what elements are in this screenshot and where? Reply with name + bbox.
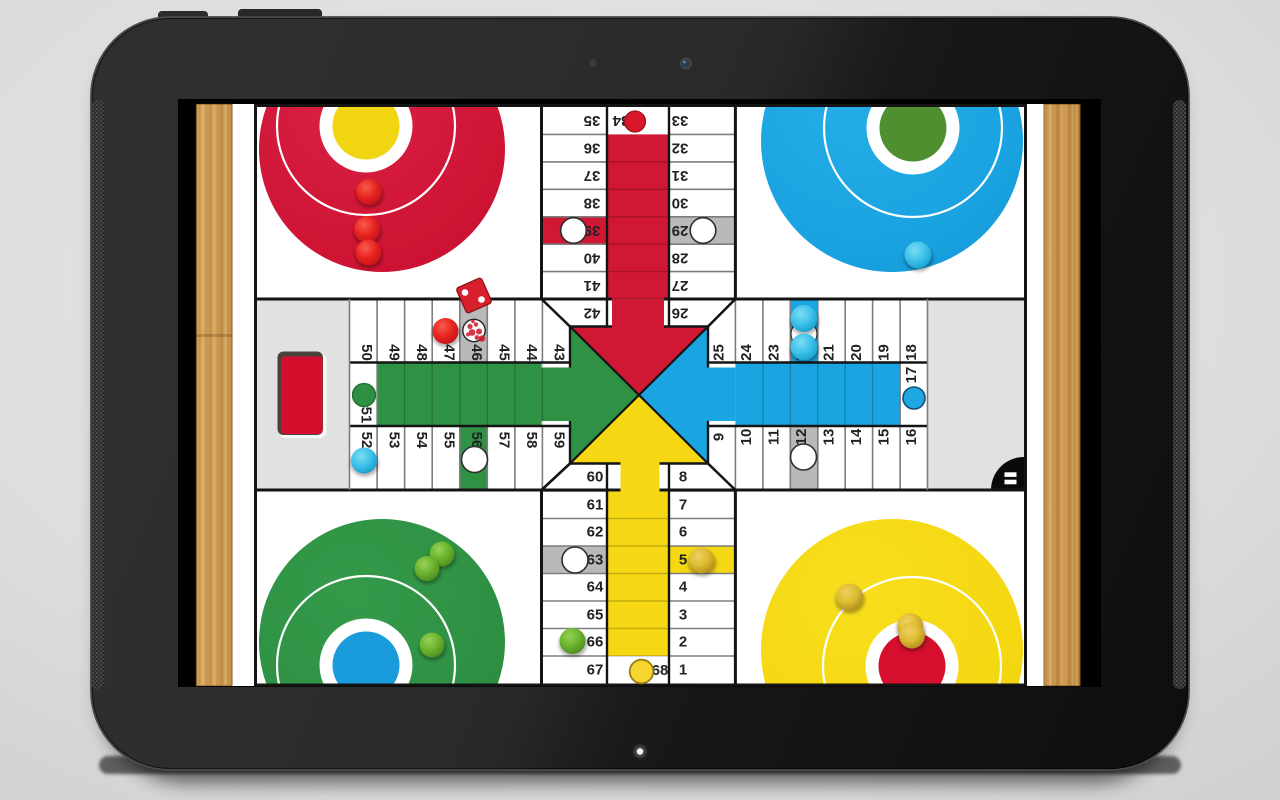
svg-text:31: 31: [672, 167, 689, 184]
svg-text:59: 59: [551, 432, 568, 449]
svg-text:41: 41: [584, 277, 601, 294]
svg-text:64: 64: [587, 579, 604, 596]
svg-text:5: 5: [679, 551, 687, 568]
svg-text:15: 15: [875, 429, 892, 446]
svg-text:44: 44: [523, 344, 540, 361]
svg-text:60: 60: [587, 469, 604, 486]
svg-text:9: 9: [711, 433, 728, 441]
svg-text:42: 42: [584, 304, 601, 321]
svg-text:25: 25: [711, 344, 728, 361]
svg-text:61: 61: [587, 496, 604, 513]
svg-text:23: 23: [766, 344, 783, 361]
svg-text:40: 40: [584, 249, 601, 266]
svg-text:50: 50: [358, 344, 375, 361]
svg-text:45: 45: [496, 344, 513, 361]
svg-text:43: 43: [551, 344, 568, 361]
svg-text:4: 4: [679, 579, 688, 596]
svg-text:21: 21: [821, 344, 838, 361]
svg-text:65: 65: [587, 606, 604, 623]
svg-text:29: 29: [672, 222, 689, 239]
svg-text:46: 46: [468, 344, 485, 361]
svg-text:37: 37: [584, 167, 601, 184]
svg-text:10: 10: [738, 429, 755, 446]
svg-text:32: 32: [672, 140, 689, 157]
svg-text:35: 35: [584, 112, 601, 129]
svg-text:7: 7: [679, 496, 687, 513]
svg-text:36: 36: [584, 140, 601, 157]
svg-text:6: 6: [679, 524, 687, 541]
svg-text:66: 66: [587, 634, 604, 651]
svg-text:12: 12: [793, 429, 810, 446]
svg-text:55: 55: [441, 432, 458, 449]
svg-text:2: 2: [679, 634, 687, 651]
svg-text:16: 16: [903, 429, 920, 446]
svg-text:24: 24: [738, 344, 755, 361]
svg-text:58: 58: [523, 432, 540, 449]
svg-text:57: 57: [496, 432, 513, 449]
svg-text:14: 14: [848, 428, 865, 445]
svg-text:51: 51: [358, 407, 375, 424]
svg-text:18: 18: [903, 344, 920, 361]
svg-text:3: 3: [679, 606, 687, 623]
svg-text:26: 26: [672, 304, 689, 321]
svg-text:11: 11: [766, 429, 783, 445]
svg-text:19: 19: [875, 344, 892, 361]
svg-text:38: 38: [584, 195, 601, 212]
svg-text:49: 49: [385, 344, 402, 361]
svg-text:33: 33: [672, 112, 689, 129]
svg-text:62: 62: [587, 524, 604, 541]
svg-text:13: 13: [821, 429, 838, 446]
svg-text:54: 54: [413, 432, 430, 449]
svg-text:52: 52: [358, 432, 375, 449]
svg-text:8: 8: [679, 469, 687, 486]
svg-text:63: 63: [587, 551, 604, 568]
svg-text:56: 56: [468, 432, 485, 449]
svg-text:17: 17: [903, 367, 920, 384]
svg-text:48: 48: [413, 344, 430, 361]
svg-text:28: 28: [672, 249, 689, 266]
svg-text:27: 27: [672, 277, 689, 294]
svg-text:20: 20: [848, 344, 865, 361]
svg-text:1: 1: [679, 661, 687, 678]
svg-text:30: 30: [672, 195, 689, 212]
svg-text:53: 53: [385, 432, 402, 449]
svg-text:67: 67: [587, 661, 604, 678]
